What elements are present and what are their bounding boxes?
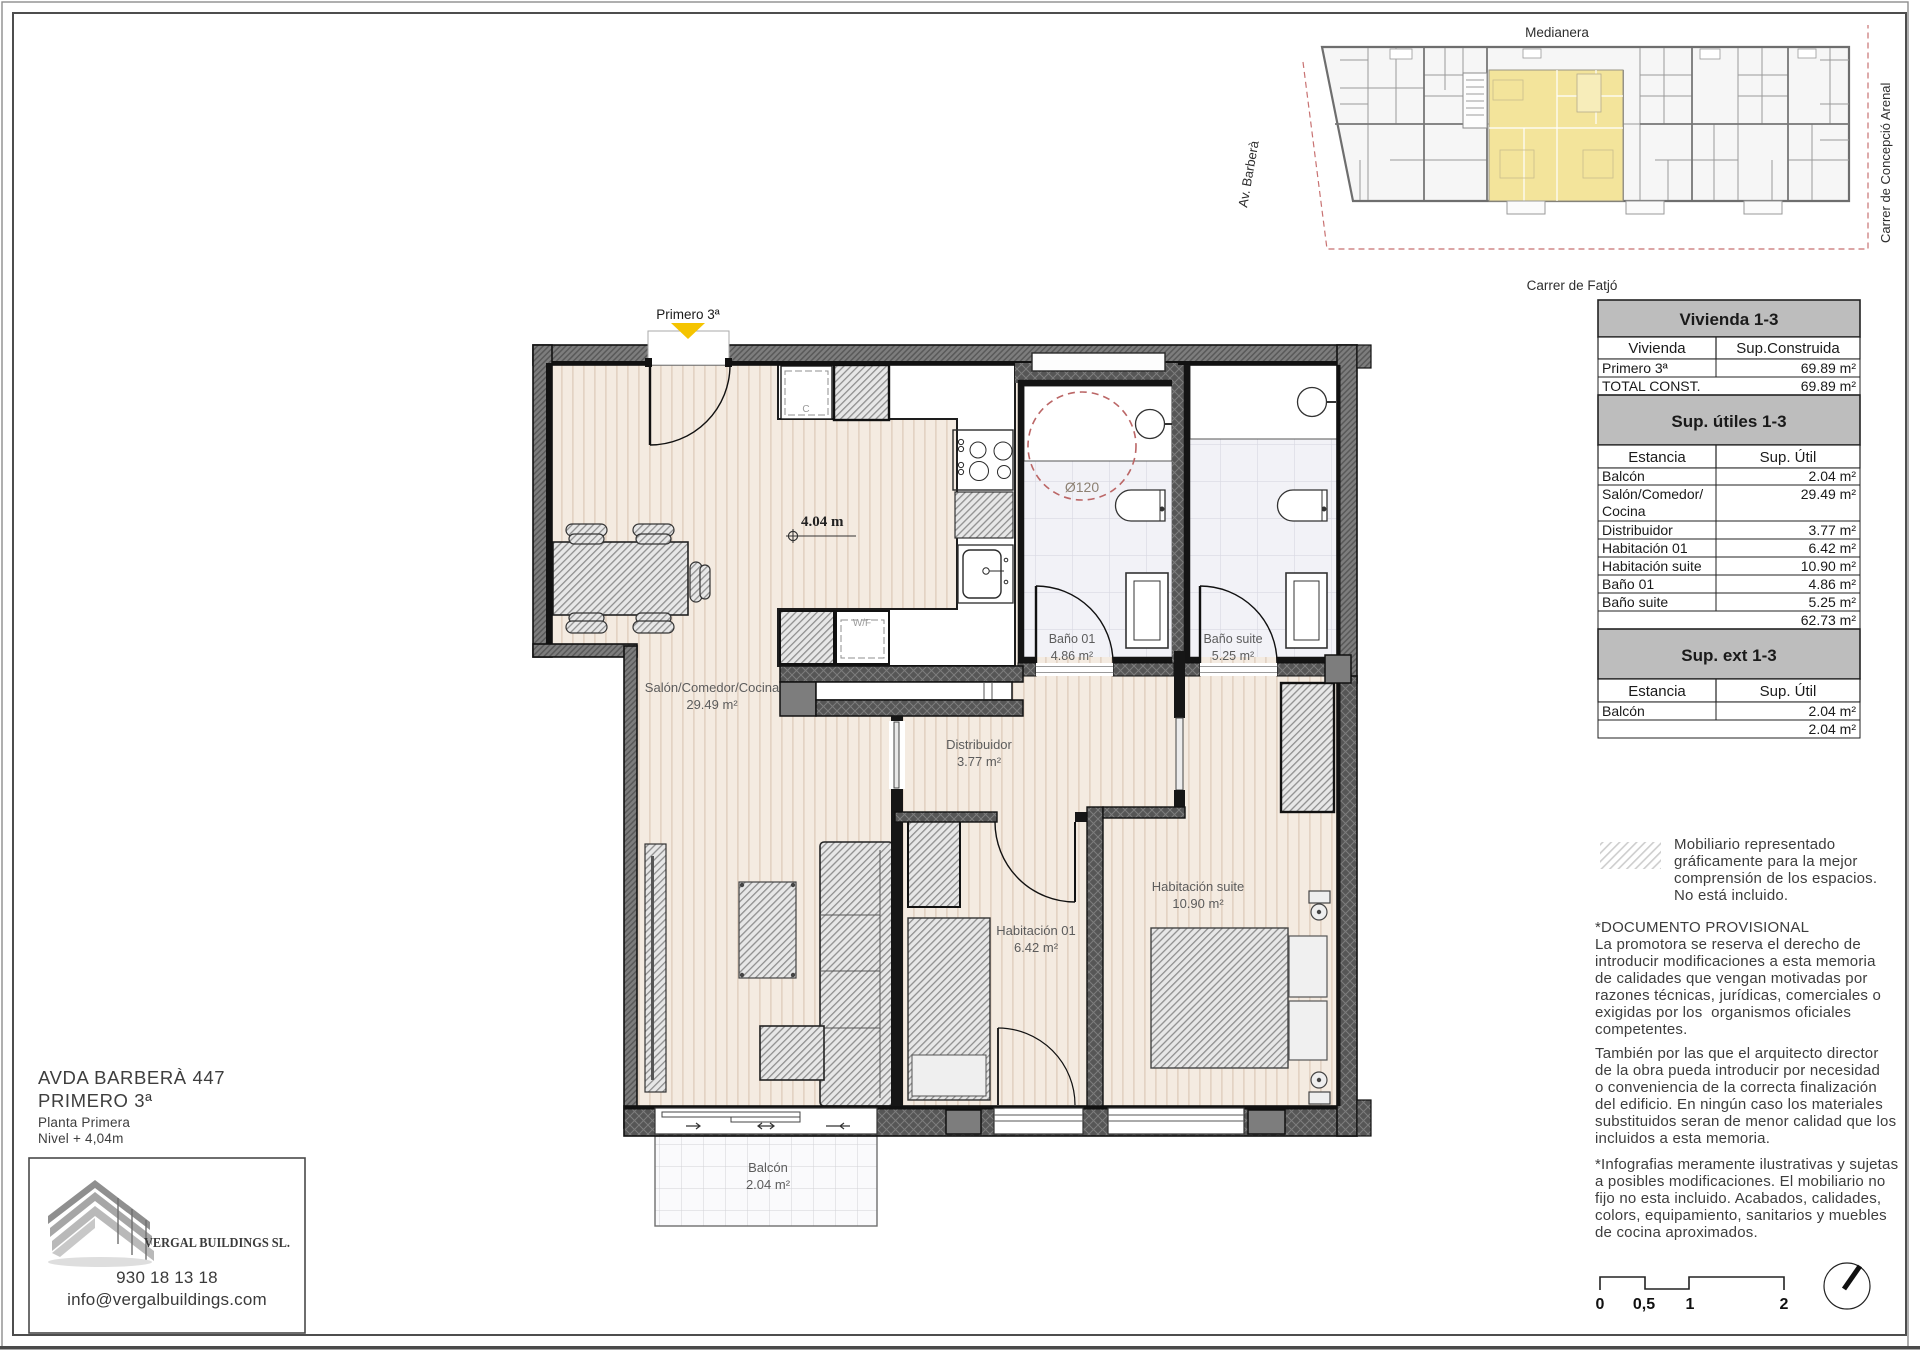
svg-text:Balcón: Balcón <box>1602 468 1645 484</box>
svg-text:Balcón: Balcón <box>748 1160 788 1175</box>
svg-text:Sup. útiles 1-3: Sup. útiles 1-3 <box>1671 412 1786 431</box>
svg-text:Primero 3ª: Primero 3ª <box>656 307 721 322</box>
svg-text:Distribuidor: Distribuidor <box>1602 522 1673 538</box>
svg-text:Distribuidor: Distribuidor <box>946 737 1012 752</box>
svg-text:Carrer de Fatjó: Carrer de Fatjó <box>1527 278 1618 293</box>
svg-text:C: C <box>802 404 809 415</box>
svg-text:4.04 m: 4.04 m <box>801 514 844 530</box>
svg-text:TOTAL CONST.: TOTAL CONST. <box>1602 378 1701 394</box>
svg-text:29.49 m²: 29.49 m² <box>1801 486 1857 502</box>
svg-text:4.86 m²: 4.86 m² <box>1809 576 1857 592</box>
svg-text:29.49 m²: 29.49 m² <box>686 697 738 712</box>
svg-text:4.86 m²: 4.86 m² <box>1051 649 1093 663</box>
svg-text:Baño suite: Baño suite <box>1602 594 1668 610</box>
svg-text:Habitación suite: Habitación suite <box>1152 879 1245 894</box>
svg-text:Carrer de Concepció Arenal: Carrer de Concepció Arenal <box>1878 82 1893 243</box>
svg-text:VERGAL BUILDINGS SL.: VERGAL BUILDINGS SL. <box>144 1236 290 1251</box>
svg-text:Baño 01: Baño 01 <box>1602 576 1654 592</box>
svg-text:2: 2 <box>1780 1296 1789 1313</box>
svg-text:Medianera: Medianera <box>1525 25 1589 40</box>
svg-text:Av. Barberà: Av. Barberà <box>1235 139 1262 209</box>
svg-text:Ø120: Ø120 <box>1065 479 1099 495</box>
svg-text:Estancia: Estancia <box>1628 683 1686 700</box>
svg-text:Salón/Comedor/: Salón/Comedor/ <box>1602 486 1703 502</box>
svg-text:1: 1 <box>1686 1296 1695 1313</box>
svg-text:Habitación 01: Habitación 01 <box>996 923 1076 938</box>
svg-text:5.25 m²: 5.25 m² <box>1212 649 1254 663</box>
svg-text:Baño 01: Baño 01 <box>1049 632 1096 646</box>
svg-text:Sup. ext 1-3: Sup. ext 1-3 <box>1681 646 1776 665</box>
svg-text:10.90 m²: 10.90 m² <box>1801 558 1857 574</box>
svg-text:2.04 m²: 2.04 m² <box>1809 468 1857 484</box>
svg-text:3.77 m²: 3.77 m² <box>957 754 1002 769</box>
svg-text:Cocina: Cocina <box>1602 503 1646 519</box>
svg-text:3.77 m²: 3.77 m² <box>1809 522 1857 538</box>
svg-text:5.25 m²: 5.25 m² <box>1809 594 1857 610</box>
svg-text:0: 0 <box>1596 1296 1605 1313</box>
svg-text:Baño suite: Baño suite <box>1203 632 1262 646</box>
svg-text:Estancia: Estancia <box>1628 449 1686 466</box>
svg-text:2.04 m²: 2.04 m² <box>1809 721 1857 737</box>
svg-text:10.90 m²: 10.90 m² <box>1172 896 1224 911</box>
svg-text:Balcón: Balcón <box>1602 703 1645 719</box>
svg-text:Salón/Comedor/Cocina: Salón/Comedor/Cocina <box>645 680 780 695</box>
svg-text:6.42 m²: 6.42 m² <box>1809 540 1857 556</box>
svg-text:2.04 m²: 2.04 m² <box>1809 703 1857 719</box>
svg-text:Sup. Útil: Sup. Útil <box>1760 683 1817 700</box>
svg-text:Habitación 01: Habitación 01 <box>1602 540 1688 556</box>
svg-text:6.42 m²: 6.42 m² <box>1014 940 1059 955</box>
svg-text:69.89 m²: 69.89 m² <box>1801 378 1857 394</box>
svg-text:Vivienda 1-3: Vivienda 1-3 <box>1680 310 1779 329</box>
svg-text:Sup. Útil: Sup. Útil <box>1760 449 1817 466</box>
svg-text:Habitación suite: Habitación suite <box>1602 558 1702 574</box>
svg-text:0,5: 0,5 <box>1633 1296 1655 1313</box>
svg-text:W/F: W/F <box>853 618 871 629</box>
svg-text:69.89 m²: 69.89 m² <box>1801 360 1857 376</box>
svg-text:Vivienda: Vivienda <box>1628 340 1686 357</box>
svg-text:62.73 m²: 62.73 m² <box>1801 612 1857 628</box>
svg-text:2.04 m²: 2.04 m² <box>746 1177 791 1192</box>
svg-text:Sup.Construida: Sup.Construida <box>1736 340 1840 357</box>
svg-text:Primero 3ª: Primero 3ª <box>1602 360 1669 376</box>
